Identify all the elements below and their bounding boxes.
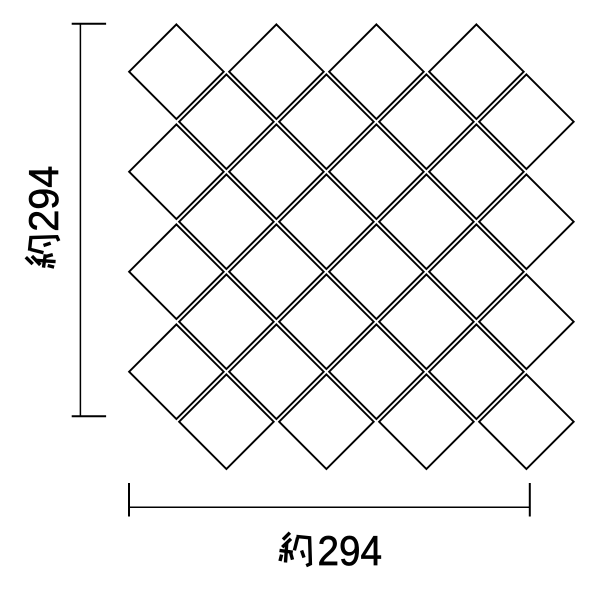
svg-text:294: 294 (20, 166, 67, 232)
svg-text:294: 294 (318, 527, 383, 574)
